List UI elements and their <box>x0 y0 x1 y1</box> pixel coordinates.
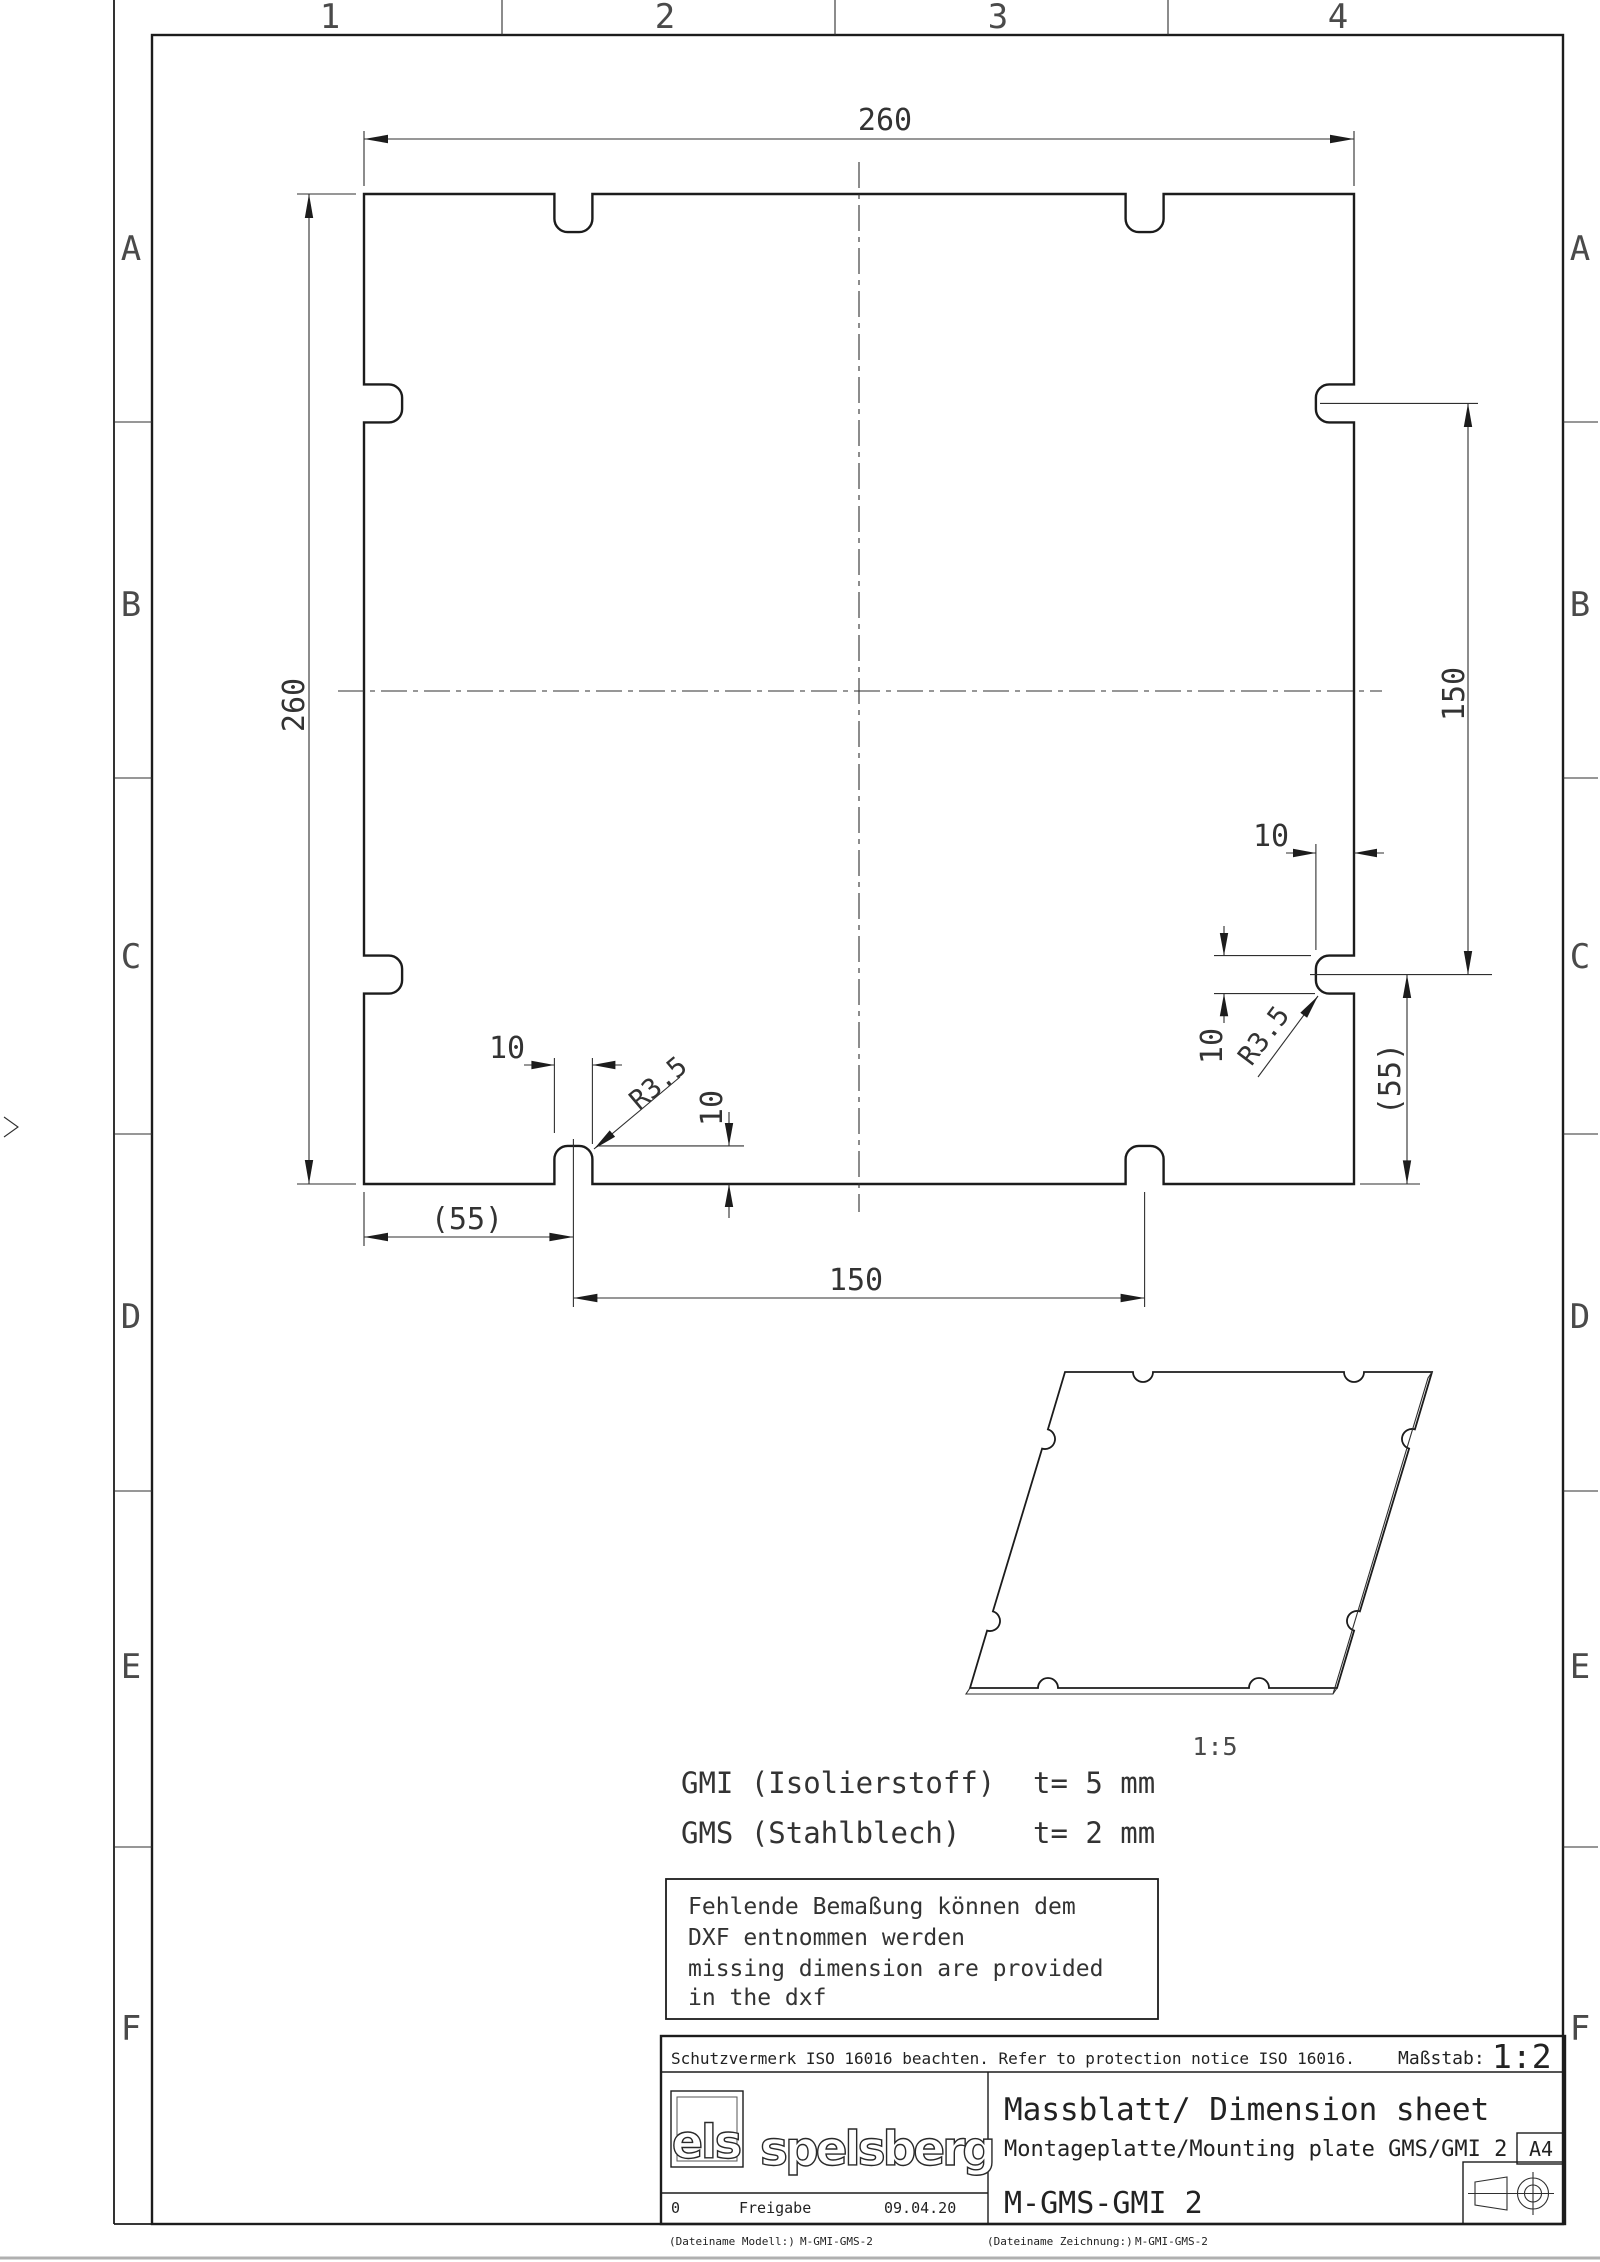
dim-260-left-label: 260 <box>277 678 312 732</box>
dim-right-55: (55) <box>1360 975 1420 1184</box>
grid-row-f-left: F <box>121 2009 141 2049</box>
note-line-1: Fehlende Bemaßung können dem <box>688 1894 1076 1920</box>
note-line-2: DXF entnommen werden <box>688 1925 965 1951</box>
radius-r35-right-label: R3.5 <box>1232 1001 1296 1072</box>
grid-col-4: 4 <box>1328 0 1348 37</box>
grid-row-e-left: E <box>121 1647 141 1687</box>
model-file-value: M-GMI-GMS-2 <box>800 2235 873 2248</box>
dim-10-right-depth-label: 10 <box>1253 819 1289 854</box>
dim-height-260: 260 <box>277 194 356 1184</box>
scale-value: 1:2 <box>1492 2037 1552 2076</box>
dim-right-notch-depth: 10 <box>1253 819 1384 950</box>
radius-r35-bottom-label: R3.5 <box>624 1051 694 1117</box>
projection-symbol-icon <box>1463 2162 1565 2224</box>
grid-row-b-right: B <box>1570 585 1590 625</box>
part-title: Montageplatte/Mounting plate GMS/GMI 2 <box>1004 2137 1507 2162</box>
material-legend: GMI (Isolierstoff) t= 5 mm GMS (Stahlble… <box>681 1766 1155 1850</box>
drawing-canvas: 1 2 3 4 A B C D E F A B C D E F 260 <box>0 0 1600 2262</box>
dim-10-bottom-depth-label: 10 <box>695 1090 730 1126</box>
dim-260-top-label: 260 <box>858 103 912 138</box>
grid-row-f-right: F <box>1570 2009 1590 2049</box>
title-block: Schutzvermerk ISO 16016 beachten. Refer … <box>661 2036 1565 2224</box>
material-gmi-code: GMI (Isolierstoff) <box>681 1766 995 1800</box>
grid-col-3: 3 <box>988 0 1008 37</box>
dim-150-bottom-label: 150 <box>829 1263 883 1298</box>
dim-150-right-label: 150 <box>1437 667 1472 721</box>
footer-filenames: (Dateiname Modell:) M-GMI-GMS-2 (Dateina… <box>669 2235 1208 2248</box>
grid-col-1: 1 <box>320 0 340 37</box>
radius-callout-right: R3.5 <box>1232 996 1318 1077</box>
grid-row-a-right: A <box>1570 229 1590 269</box>
logo-els-text: els <box>672 2115 741 2169</box>
grid-row-c-left: C <box>121 937 141 977</box>
drawing-file-value: M-GMI-GMS-2 <box>1135 2235 1208 2248</box>
fold-mark-icon <box>4 1117 18 1137</box>
grid-row-b-left: B <box>121 585 141 625</box>
note-line-3: missing dimension are provided <box>688 1956 1103 1982</box>
release-label: Freigabe <box>739 2199 811 2217</box>
spelsberg-logo: els spelsberg <box>671 2091 993 2177</box>
material-gms-thickness: t= 2 mm <box>1033 1816 1155 1850</box>
paper-format: A4 <box>1529 2137 1553 2161</box>
grid-labels: 1 2 3 4 A B C D E F A B C D E F <box>121 0 1590 2049</box>
release-date: 09.04.20 <box>884 2199 956 2217</box>
dim-bottom-notch-depth: 10 <box>598 1090 744 1218</box>
note-line-4: in the dxf <box>688 1985 826 2011</box>
model-file-label: (Dateiname Modell:) <box>669 2235 795 2248</box>
dim-10-right-width-label: 10 <box>1195 1028 1230 1064</box>
dim-bottom-55: (55) <box>364 1139 573 1307</box>
grid-row-c-right: C <box>1570 937 1590 977</box>
grid-row-d-left: D <box>121 1297 141 1337</box>
dimension-sheet-page: 1 2 3 4 A B C D E F A B C D E F 260 <box>0 0 1600 2262</box>
iso-scale-label: 1:5 <box>1192 1732 1237 1761</box>
dim-55-right-label: (55) <box>1373 1043 1408 1115</box>
revision-number: 0 <box>671 2199 680 2217</box>
dim-55-bottom-label: (55) <box>431 1202 503 1237</box>
document-type: Massblatt/ Dimension sheet <box>1004 2092 1489 2128</box>
dim-bottom-notch-width: 10 <box>489 1031 622 1144</box>
isometric-view: 1:5 <box>966 1372 1432 1761</box>
drawing-number: M-GMS-GMI 2 <box>1004 2186 1203 2221</box>
logo-spelsberg-text: spelsberg <box>760 2122 993 2177</box>
drawing-file-label: (Dateiname Zeichnung:) <box>987 2235 1133 2248</box>
grid-row-d-right: D <box>1570 1297 1590 1337</box>
plate-thickness-edge <box>966 1372 1432 1694</box>
grid-row-a-left: A <box>121 229 141 269</box>
material-gmi-thickness: t= 5 mm <box>1033 1766 1155 1800</box>
scale-label: Maßstab: <box>1398 2048 1485 2069</box>
material-gms-code: GMS (Stahlblech) <box>681 1816 960 1850</box>
note-box: Fehlende Bemaßung können dem DXF entnomm… <box>666 1879 1158 2019</box>
grid-row-e-right: E <box>1570 1647 1590 1687</box>
dim-10-bottom-width-label: 10 <box>489 1031 525 1066</box>
grid-col-2: 2 <box>655 0 675 37</box>
dim-right-150: 150 <box>1310 403 1492 974</box>
protection-notice: Schutzvermerk ISO 16016 beachten. Refer … <box>671 2049 1355 2068</box>
